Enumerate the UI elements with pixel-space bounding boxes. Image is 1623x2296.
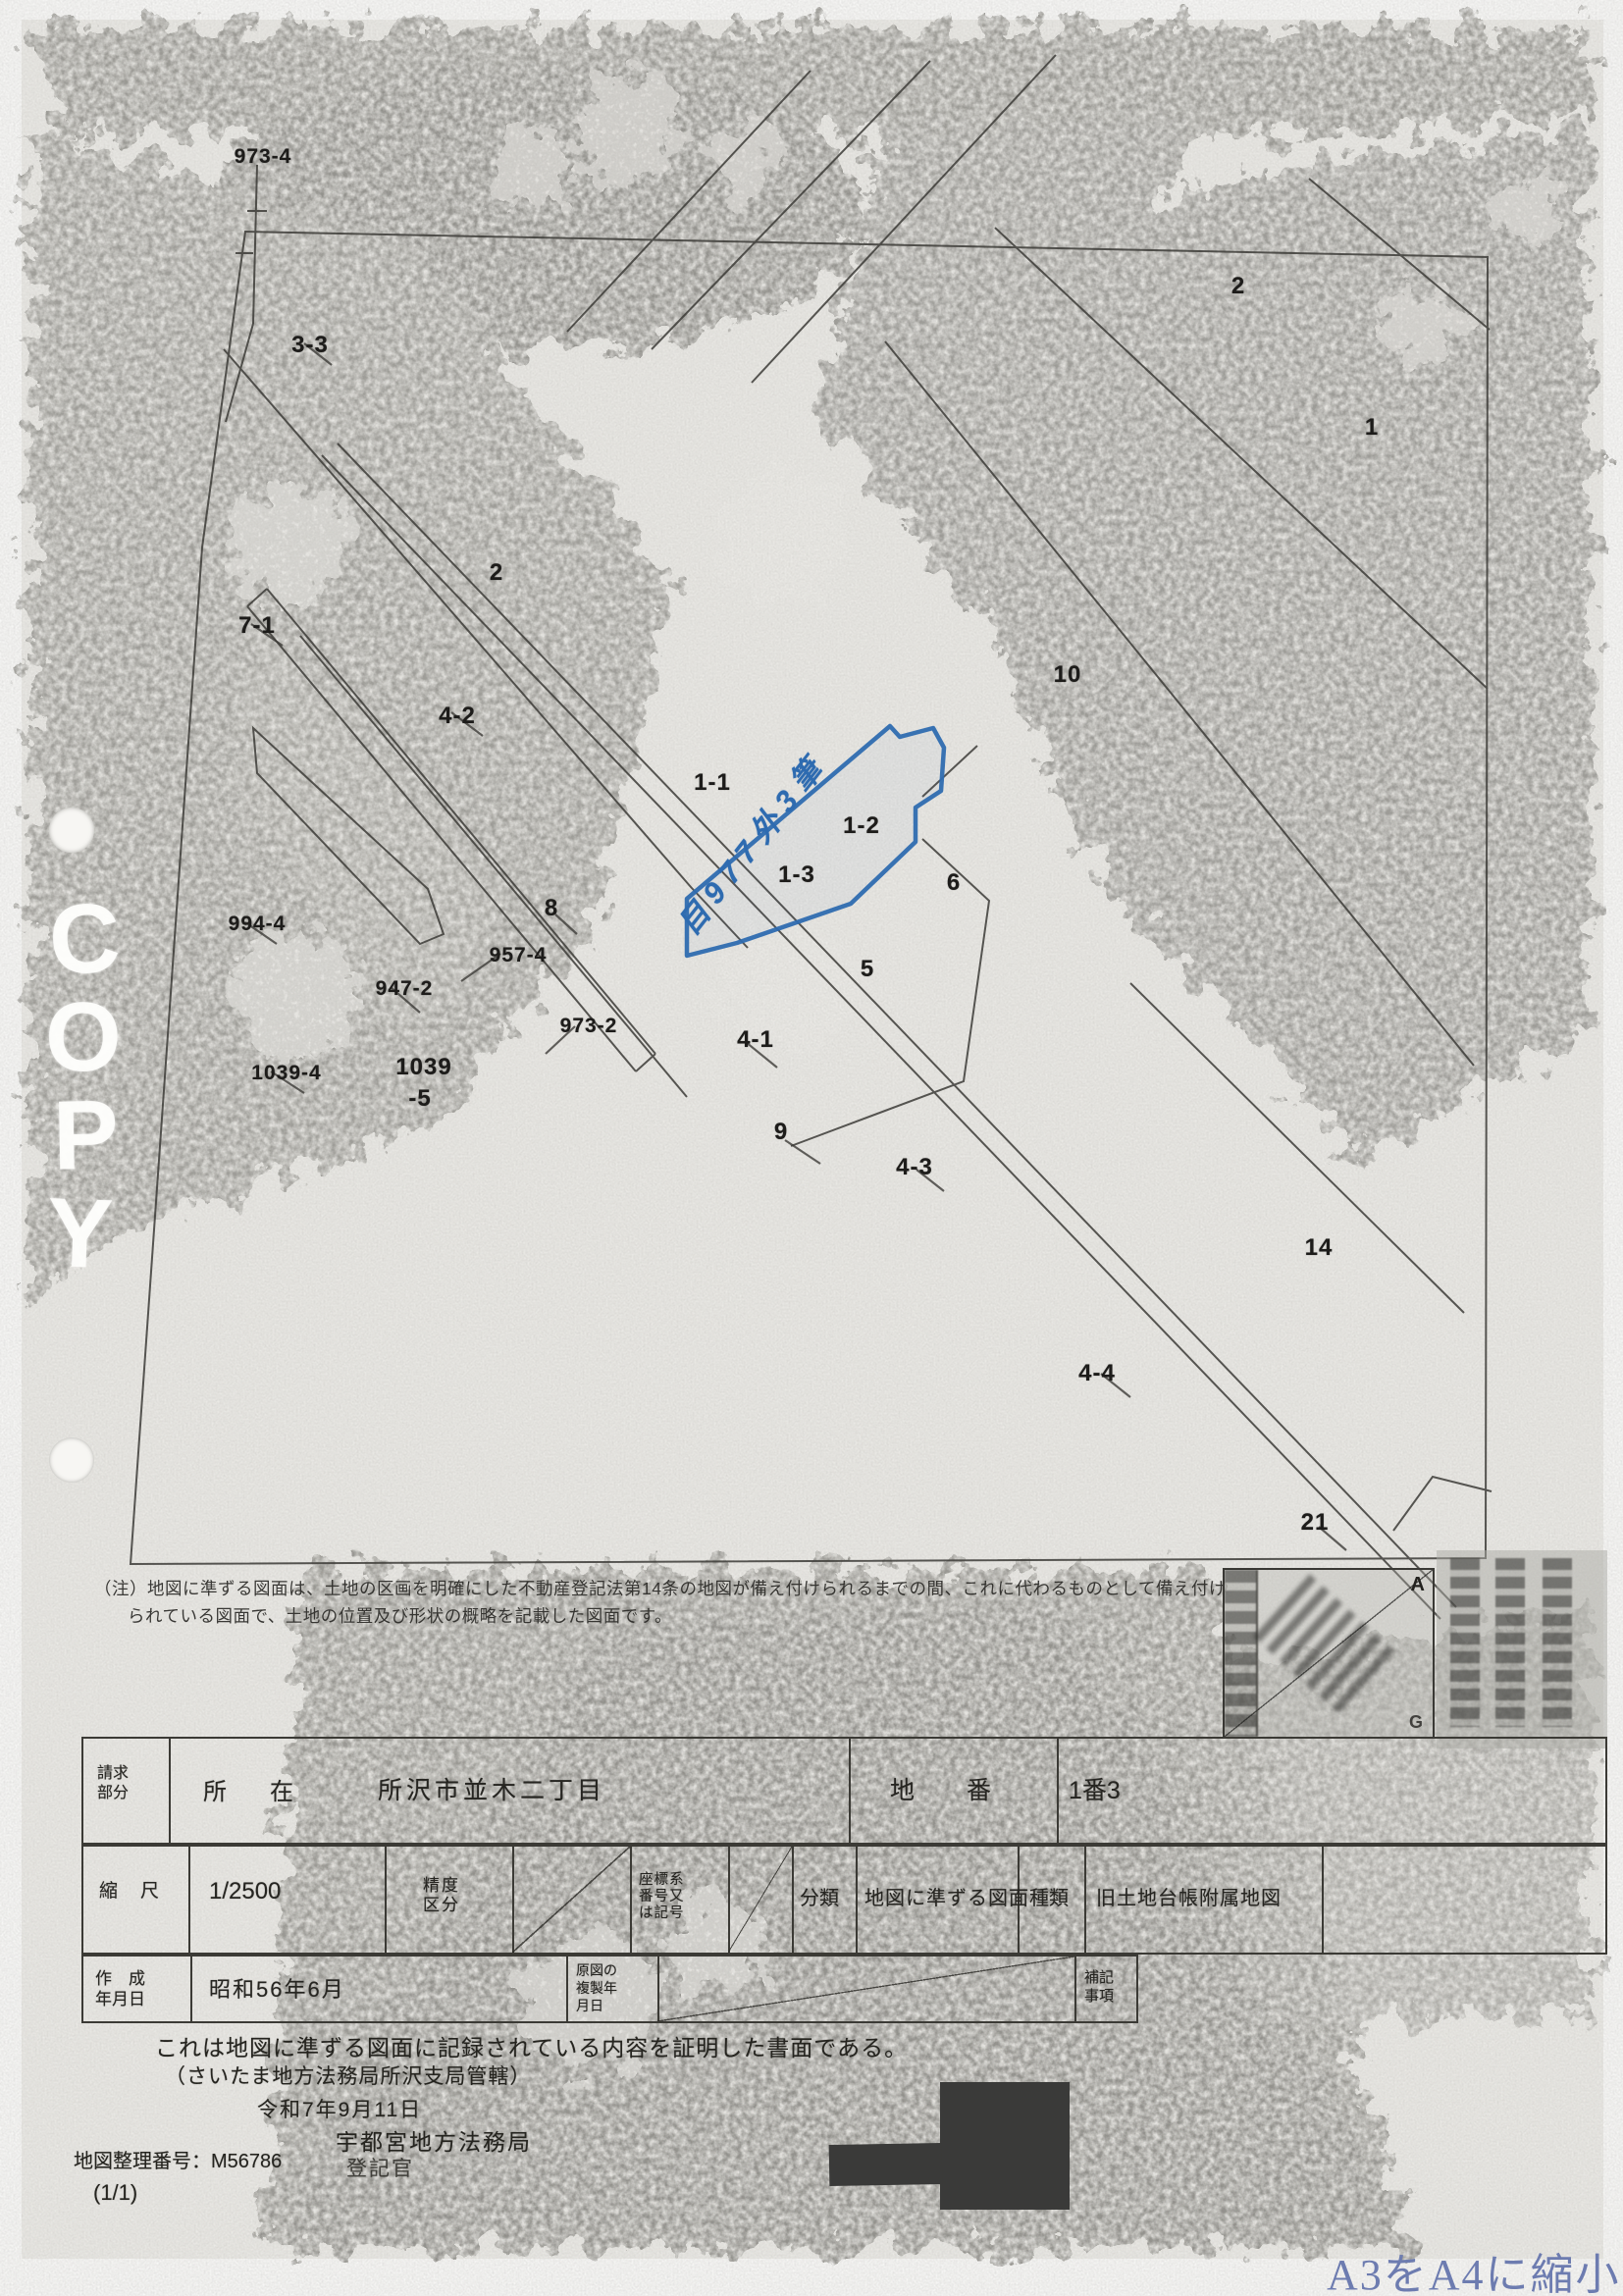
parcel-label: 947-2 [376,977,434,1001]
parcel-label: 2 [490,559,503,587]
location-label: 所 在 [203,1772,303,1806]
punch-hole [49,808,94,853]
map-note-line1: （注）地図に準ずる図面は、土地の区画を明確にした不動産登記法第14条の地図が備え… [94,1576,1227,1600]
parcel-label: 973-4 [235,145,292,169]
remarks-label-line1: 補記 [1084,1969,1114,1986]
parcel-label: -5 [408,1085,431,1113]
sheet-index-box: A G [1223,1568,1435,1739]
class-value: 地図に準ずる図面 [864,1882,1029,1910]
request-part-label: 請求 部分 [97,1764,129,1803]
parcel-label: 4-2 [439,703,476,730]
precision-class-label: 精度 区分 [423,1876,460,1915]
parcel-label: 10 [1054,661,1082,689]
parcel-label: 3-3 [291,332,329,359]
scanned-cadastral-certificate: C O P Y 973-43-3221107-14-21-11-21-36859… [0,0,1623,2296]
copy-label-line2: 複製年 [576,1980,617,1996]
parcel-label: 9 [774,1119,788,1146]
table-row-location: 請求 部分 所 在 所沢市並木二丁目 地 番 1番3 [81,1737,1607,1845]
request-part-label-line1: 請求 [97,1765,129,1782]
coord-label-line2: 番号又 [639,1889,685,1905]
table-border [190,1957,192,2021]
scale-value: 1/2500 [209,1878,281,1905]
table-border [630,1847,632,1953]
coord-label-line3: は記号 [639,1905,685,1921]
parcel-label: 1-2 [843,812,880,840]
page-indicator: (1/1) [93,2180,137,2206]
table-border [1084,1847,1086,1953]
request-part-label-line2: 部分 [97,1785,129,1801]
certification-date: 令和7年9月11日 [257,2094,422,2123]
created-date-value: 昭和56年6月 [209,1972,345,2004]
table-border [849,1739,851,1843]
table-border [1057,1739,1059,1843]
certification-jurisdiction: （さいたま地方法務局所沢支局管轄） [165,2061,531,2090]
lot-number-value: 1番3 [1069,1771,1121,1806]
coord-label-line1: 座標系 [639,1872,685,1888]
parcel-label: 4-3 [896,1154,933,1181]
empty-cell-slash [512,1847,630,1953]
redaction-box-large [940,2082,1070,2210]
remarks-label-line2: 事項 [1084,1988,1114,2005]
table-row-created: 作 成 年月日 昭和56年6月 原図の 複製年 月日 補記 事項 [81,1955,1138,2023]
remarks-label: 補記 事項 [1084,1968,1114,2006]
table-border [856,1847,858,1953]
parcel-label: 1-3 [778,861,815,889]
class-label: 分類 [800,1882,839,1910]
copy-label-line3: 月日 [576,1998,603,2013]
parcel-label: 5 [861,956,874,983]
table-border [1074,1957,1076,2021]
index-corner-label-a: A [1411,1574,1425,1596]
location-value: 所沢市並木二丁目 [378,1771,605,1806]
type-label: 種類 [1029,1882,1069,1910]
type-value: 旧土地台帳附属地図 [1096,1882,1282,1910]
index-box-label-strip [1225,1570,1258,1737]
map-number: 地図整理番号：M56786 [74,2145,282,2173]
lot-number-label: 地 番 [890,1771,1005,1806]
map-note-line2: られている図面で、土地の位置及び形状の概略を記載した図面です。 [128,1603,672,1628]
parcel-label: 1039 [395,1054,451,1081]
parcel-label: 7-1 [238,612,276,640]
parcel-label: 973-2 [560,1015,618,1038]
parcel-label: 1-1 [694,769,731,797]
table-border [566,1957,568,2021]
parcel-label: 1 [1365,414,1379,442]
empty-cell-slash [657,1957,1074,2021]
parcel-label: 1039-4 [251,1062,321,1085]
created-label-line2: 年月日 [95,1990,145,2009]
adjacent-sheet-list [1437,1550,1607,1748]
parcel-label: 21 [1301,1509,1330,1537]
parcel-label: 957-4 [490,944,548,967]
precision-label-line2: 区分 [423,1896,460,1914]
vertical-text-column [1450,1558,1480,1727]
redaction-box-small [829,2143,943,2186]
created-date-label: 作 成 年月日 [95,1968,145,2009]
table-border [792,1847,794,1953]
certification-officer: 登記官 [346,2153,414,2182]
parcel-label: 8 [545,895,558,922]
parcel-label: 4-1 [737,1026,774,1054]
parcel-label: 14 [1305,1234,1334,1262]
vertical-text-column [1495,1558,1525,1727]
punch-hole [49,1437,94,1483]
parcel-label: 994-4 [229,913,287,936]
index-box-stamp-marks [1252,1574,1394,1714]
empty-cell-slash [728,1847,792,1953]
coordinate-system-label: 座標系 番号又 は記号 [639,1872,685,1922]
table-border [188,1847,190,1953]
table-border [169,1739,171,1843]
certification-office: 宇都宮地方法務局 [336,2123,532,2157]
scale-label: 縮 尺 [99,1876,161,1903]
table-border [385,1847,387,1953]
certification-statement: これは地図に準ずる図面に記録されている内容を証明した書面である。 [155,2029,908,2062]
parcel-label: 4-4 [1078,1360,1116,1387]
vertical-text-column [1543,1558,1572,1727]
parcel-label: 6 [947,869,961,897]
reduction-note: A3をA4に縮小 [1327,2239,1621,2296]
precision-label-line1: 精度 [423,1876,460,1895]
index-corner-label-g: G [1409,1712,1423,1733]
label-leader-ticks [245,343,1346,1550]
copy-label-line1: 原図の [576,1962,617,1978]
parcel-label: 2 [1231,273,1245,300]
created-label-line1: 作 成 [95,1969,145,1988]
table-border [1322,1847,1324,1953]
copy-date-label: 原図の 複製年 月日 [576,1961,617,2014]
table-row-scale-type: 縮 尺 1/2500 精度 区分 座標系 番号又 は記号 分類 地図に準ずる図面… [81,1845,1607,1955]
